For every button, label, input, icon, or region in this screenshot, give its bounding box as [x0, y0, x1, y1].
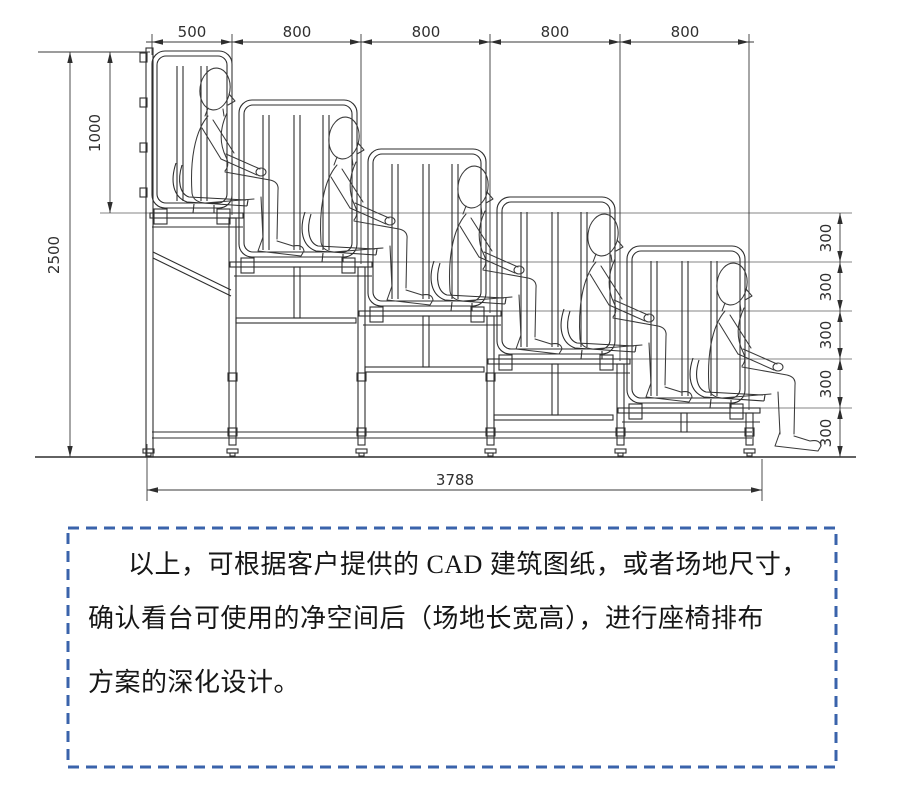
note-line-3: 方案的深化设计。: [88, 662, 300, 699]
dim-label-2500: 2500: [45, 236, 63, 274]
dim-label-1000: 1000: [86, 114, 104, 152]
note-box: 以上，可根据客户提供的 CAD 建筑图纸，或者场地尺寸， 确认看台可使用的净空间…: [66, 526, 838, 769]
dim-label-top-3: 800: [412, 23, 441, 41]
dim-label-300-1: 300: [817, 224, 835, 253]
dim-label-top-1: 500: [178, 23, 207, 41]
note-line-1: 以上，可根据客户提供的 CAD 建筑图纸，或者场地尺寸，: [128, 544, 808, 581]
dim-label-300-4: 300: [817, 370, 835, 399]
page: 500 800 800 800 800 1000 2500 300 300 30…: [0, 0, 900, 790]
dim-label-3788: 3788: [436, 471, 474, 489]
dim-label-300-2: 300: [817, 273, 835, 302]
dim-label-top-5: 800: [671, 23, 700, 41]
dim-label-top-2: 800: [283, 23, 312, 41]
dim-label-300-3: 300: [817, 321, 835, 350]
support-posts: [227, 218, 755, 456]
tier-railings: [152, 51, 745, 419]
dim-label-top-4: 800: [541, 23, 570, 41]
grandstand-section-drawing: 500 800 800 800 800 1000 2500 300 300 30…: [0, 0, 900, 515]
note-line-2: 确认看台可使用的净空间后（场地长宽高），进行座椅排布: [88, 598, 764, 635]
understructure: [35, 48, 856, 457]
dim-label-300-5: 300: [817, 419, 835, 448]
seats: [173, 163, 765, 408]
railing-tier-1: [152, 51, 232, 224]
